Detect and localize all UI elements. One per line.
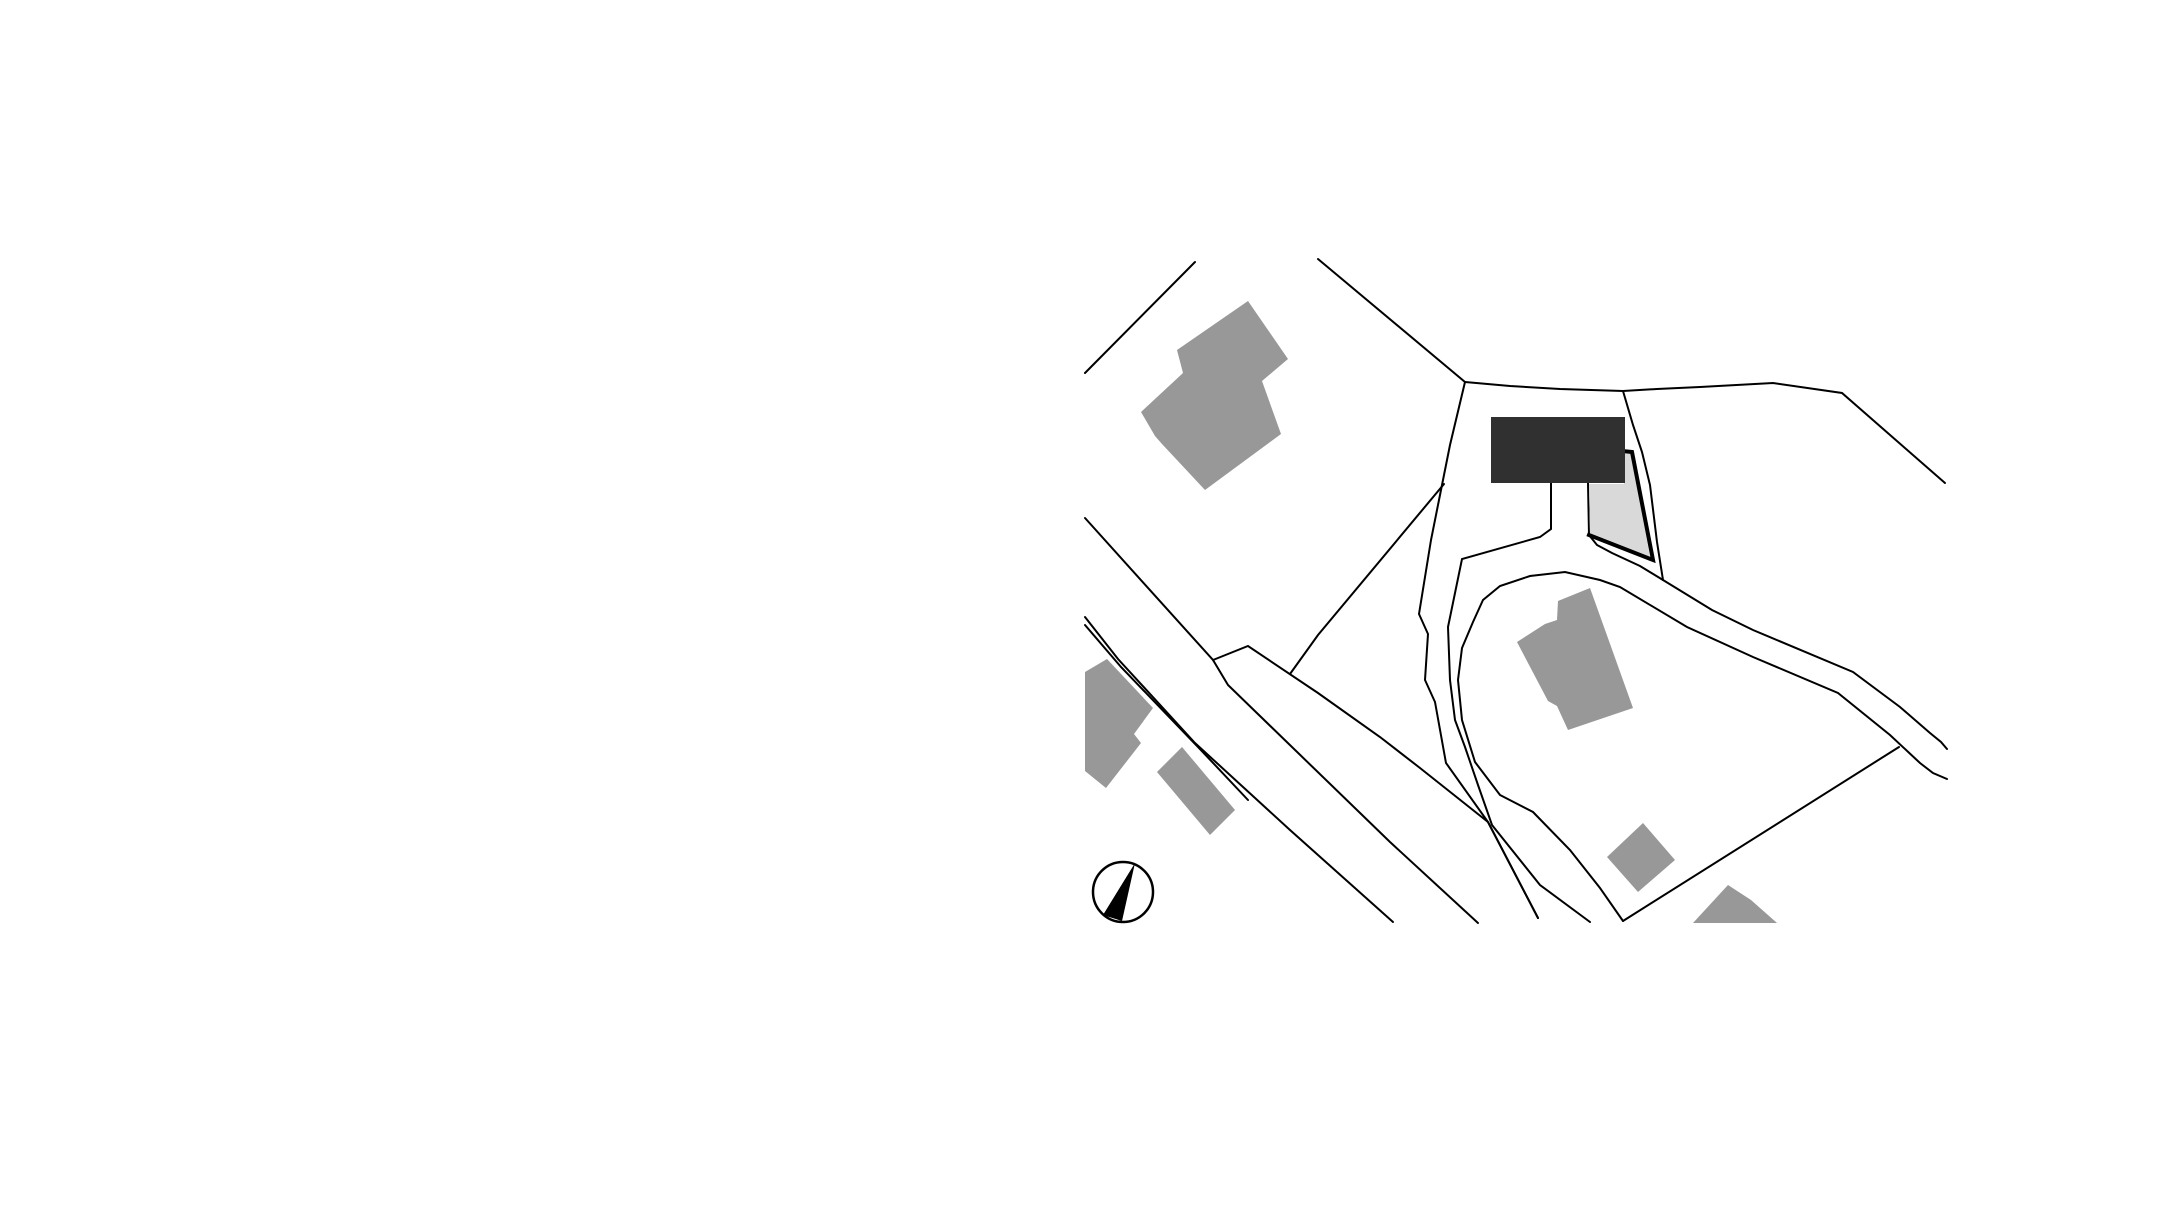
building-footprint-southeast-small xyxy=(1607,823,1675,892)
building-footprint-northwest xyxy=(1141,301,1288,490)
field-boundary-southeast xyxy=(1623,747,1899,921)
north-arrow-layer xyxy=(1093,862,1153,922)
building-footprint-west-small xyxy=(1157,747,1235,835)
spur-boundary xyxy=(1290,484,1444,674)
building-footprint-west-large xyxy=(1085,659,1153,788)
boundary-line-north xyxy=(1318,259,1465,382)
building-footprint-layer xyxy=(1085,301,1777,923)
project-building-layer xyxy=(1491,417,1625,483)
boundary-line-northwest xyxy=(1085,262,1195,373)
road-north-edge xyxy=(1663,580,1947,749)
page-background xyxy=(0,0,2182,1220)
west-road-right-edge xyxy=(1085,518,1478,923)
road-south-edge xyxy=(1458,572,1947,921)
building-footprint-south-clipped xyxy=(1693,885,1777,923)
building-footprint-central xyxy=(1517,588,1633,730)
project-building xyxy=(1491,417,1625,483)
north-arrow-needle-icon xyxy=(1103,863,1135,921)
site-plan xyxy=(0,0,2182,1220)
